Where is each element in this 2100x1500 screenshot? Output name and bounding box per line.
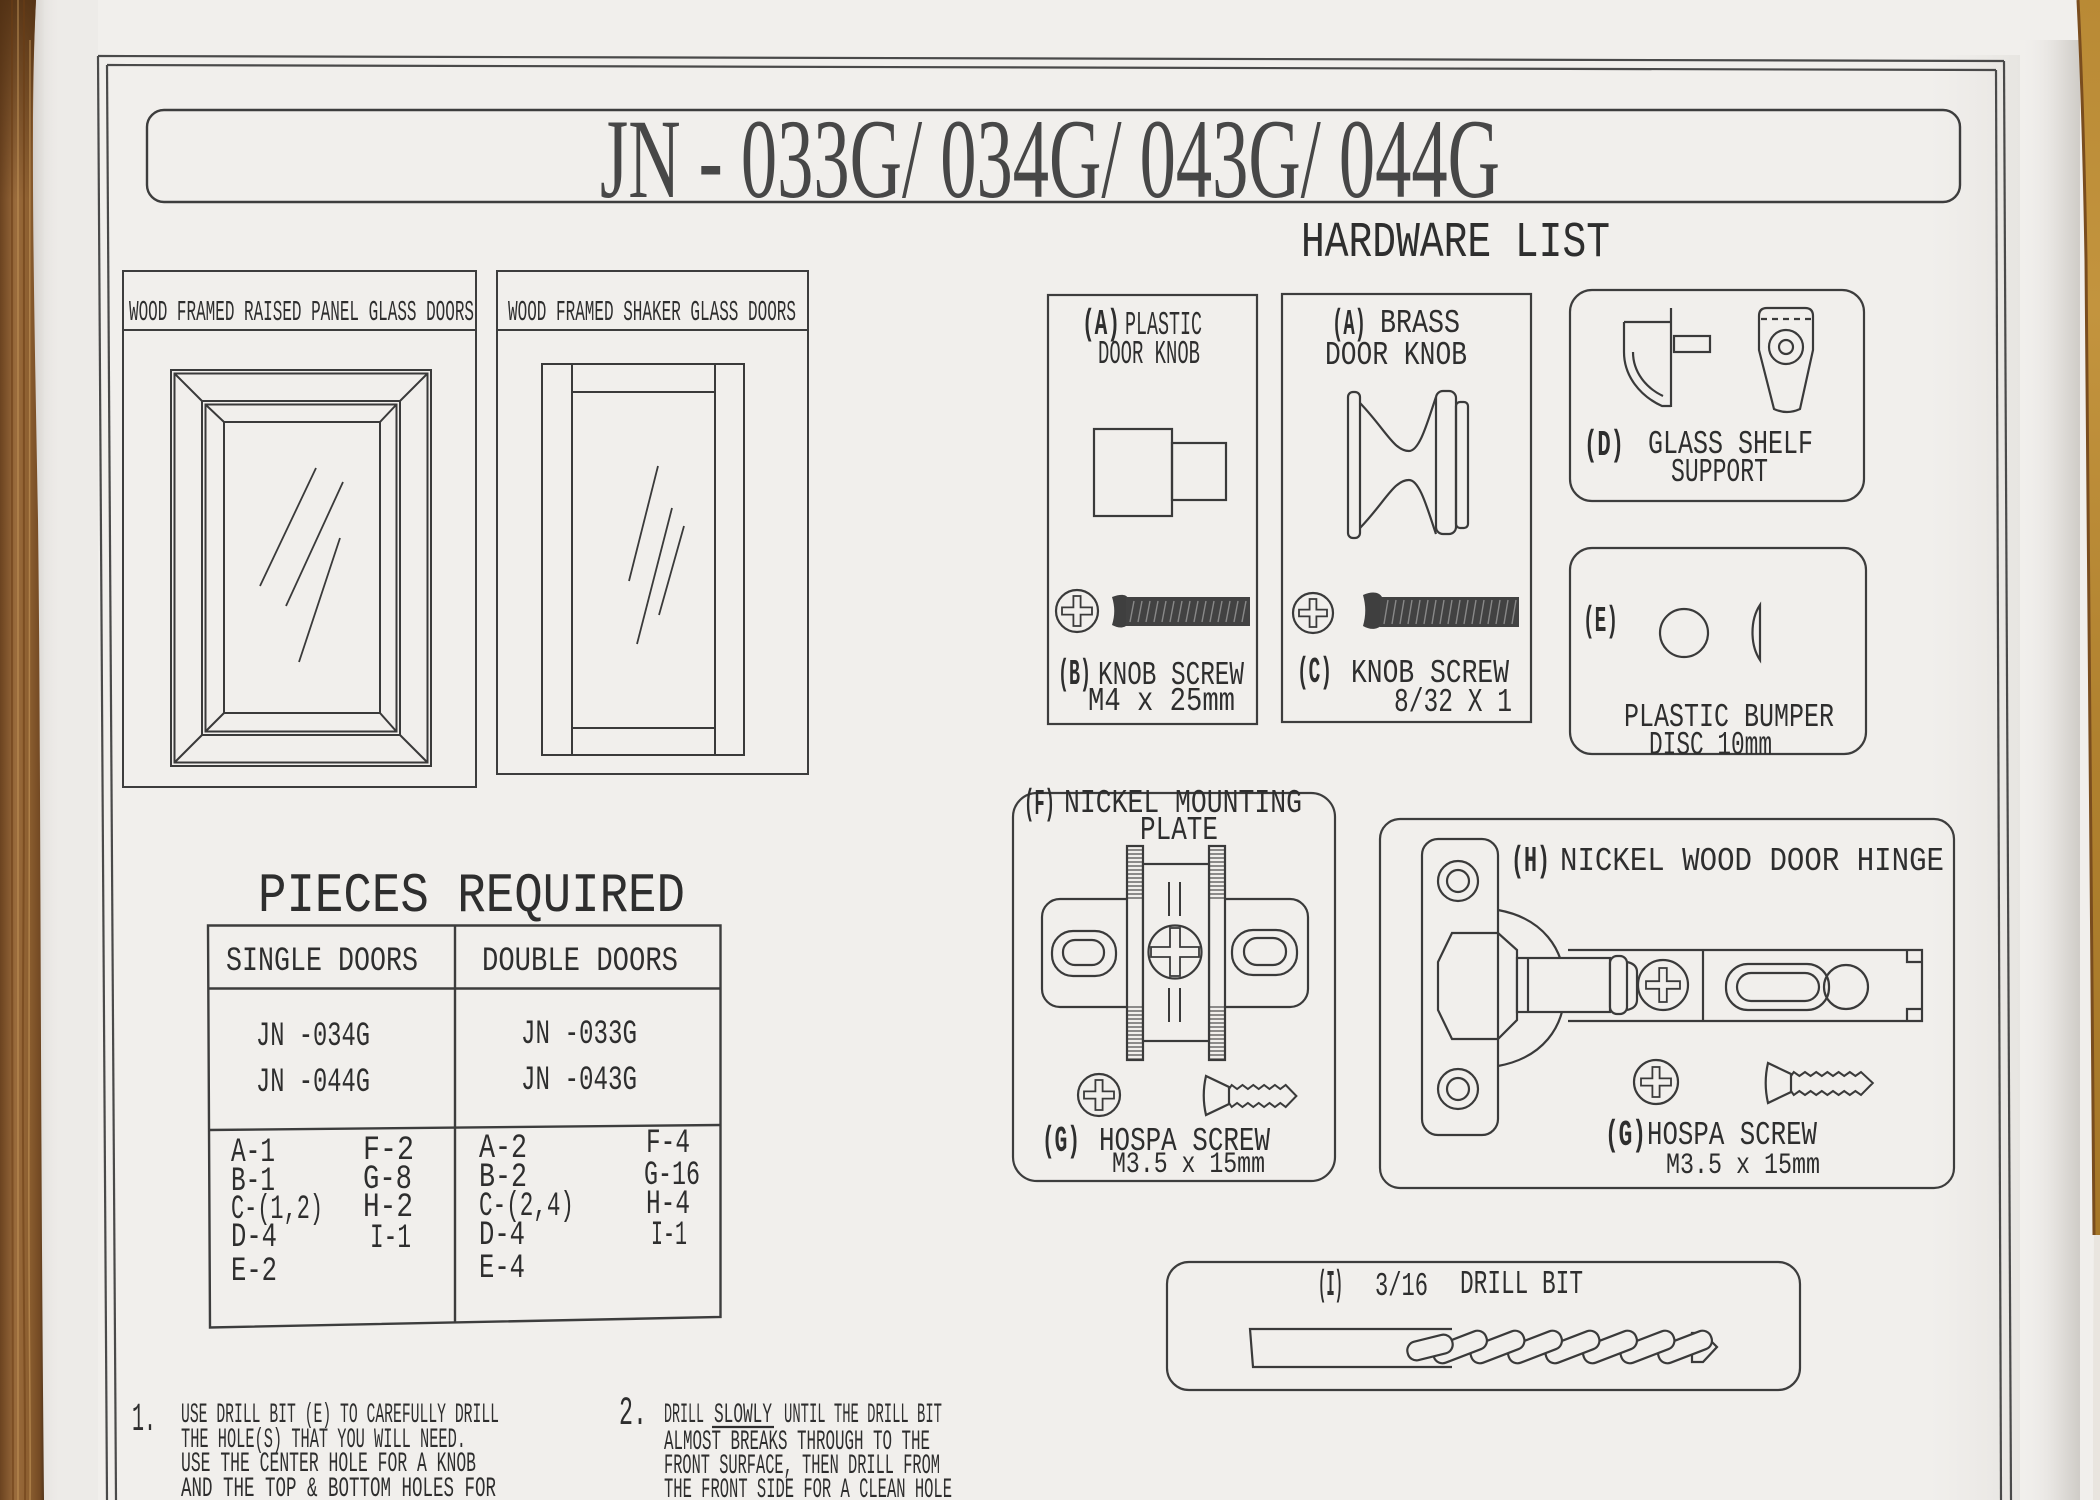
svg-text:SUPPORT: SUPPORT bbox=[1671, 454, 1768, 491]
svg-text:JN -043G: JN -043G bbox=[521, 1062, 637, 1100]
svg-text:(B): (B) bbox=[1058, 654, 1091, 695]
svg-text:AND THE TOP & BOTTOM HOLES FOR: AND THE TOP & BOTTOM HOLES FOR bbox=[181, 1474, 496, 1500]
svg-text:M3.5 x 15mm: M3.5 x 15mm bbox=[1112, 1148, 1265, 1182]
svg-text:M4 x 25mm: M4 x 25mm bbox=[1088, 683, 1235, 720]
svg-text:3/16: 3/16 bbox=[1375, 1268, 1428, 1305]
svg-text:DOOR KNOB: DOOR KNOB bbox=[1325, 337, 1467, 374]
svg-text:(F): (F) bbox=[1024, 784, 1055, 825]
svg-text:I-1: I-1 bbox=[370, 1220, 411, 1258]
svg-text:JN -034G: JN -034G bbox=[256, 1018, 370, 1056]
svg-text:E-4: E-4 bbox=[479, 1250, 525, 1288]
svg-text:I-1: I-1 bbox=[651, 1217, 687, 1255]
svg-text:UNTIL THE DRILL BIT: UNTIL THE DRILL BIT bbox=[784, 1400, 942, 1431]
svg-text:(D): (D) bbox=[1584, 425, 1624, 466]
svg-text:DOUBLE DOORS: DOUBLE DOORS bbox=[482, 943, 678, 981]
svg-text:M3.5 x 15mm: M3.5 x 15mm bbox=[1666, 1149, 1820, 1183]
svg-text:JN - 033G/ 034G/ 043G/ 044G: JN - 033G/ 034G/ 043G/ 044G bbox=[600, 97, 1500, 222]
svg-text:(I): (I) bbox=[1318, 1265, 1343, 1306]
svg-text:WOOD FRAMED SHAKER GLASS DOORS: WOOD FRAMED SHAKER GLASS DOORS bbox=[508, 296, 796, 329]
svg-text:2.: 2. bbox=[619, 1392, 647, 1437]
svg-text:PIECES REQUIRED: PIECES REQUIRED bbox=[258, 864, 685, 928]
svg-text:1.: 1. bbox=[132, 1398, 156, 1443]
svg-text:D-4: D-4 bbox=[231, 1219, 277, 1257]
svg-text:(C): (C) bbox=[1297, 652, 1332, 693]
svg-text:SINGLE DOORS: SINGLE DOORS bbox=[226, 943, 418, 981]
svg-text:PLATE: PLATE bbox=[1140, 812, 1218, 849]
svg-text:DRILL: DRILL bbox=[664, 1400, 704, 1431]
svg-text:(H): (H) bbox=[1511, 841, 1550, 882]
svg-text:E-2: E-2 bbox=[231, 1253, 277, 1291]
svg-text:JN -033G: JN -033G bbox=[521, 1016, 637, 1054]
svg-text:8/32 X 1: 8/32 X 1 bbox=[1394, 684, 1512, 721]
svg-text:DRILL BIT: DRILL BIT bbox=[1460, 1266, 1583, 1303]
svg-text:HARDWARE LIST: HARDWARE LIST bbox=[1301, 215, 1610, 272]
svg-text:(G): (G) bbox=[1605, 1115, 1646, 1156]
svg-text:NICKEL WOOD DOOR HINGE: NICKEL WOOD DOOR HINGE bbox=[1560, 843, 1944, 880]
svg-text:DOOR KNOB: DOOR KNOB bbox=[1098, 336, 1200, 373]
svg-text:JN -044G: JN -044G bbox=[256, 1064, 370, 1102]
svg-text:THE FRONT SIDE FOR A CLEAN HOL: THE FRONT SIDE FOR A CLEAN HOLE bbox=[664, 1475, 952, 1500]
svg-text:DISC 10mm: DISC 10mm bbox=[1649, 727, 1772, 764]
svg-text:WOOD FRAMED RAISED PANEL GLASS: WOOD FRAMED RAISED PANEL GLASS DOORS bbox=[129, 296, 474, 329]
svg-text:(G): (G) bbox=[1042, 1121, 1080, 1162]
svg-text:(E): (E) bbox=[1583, 601, 1618, 642]
